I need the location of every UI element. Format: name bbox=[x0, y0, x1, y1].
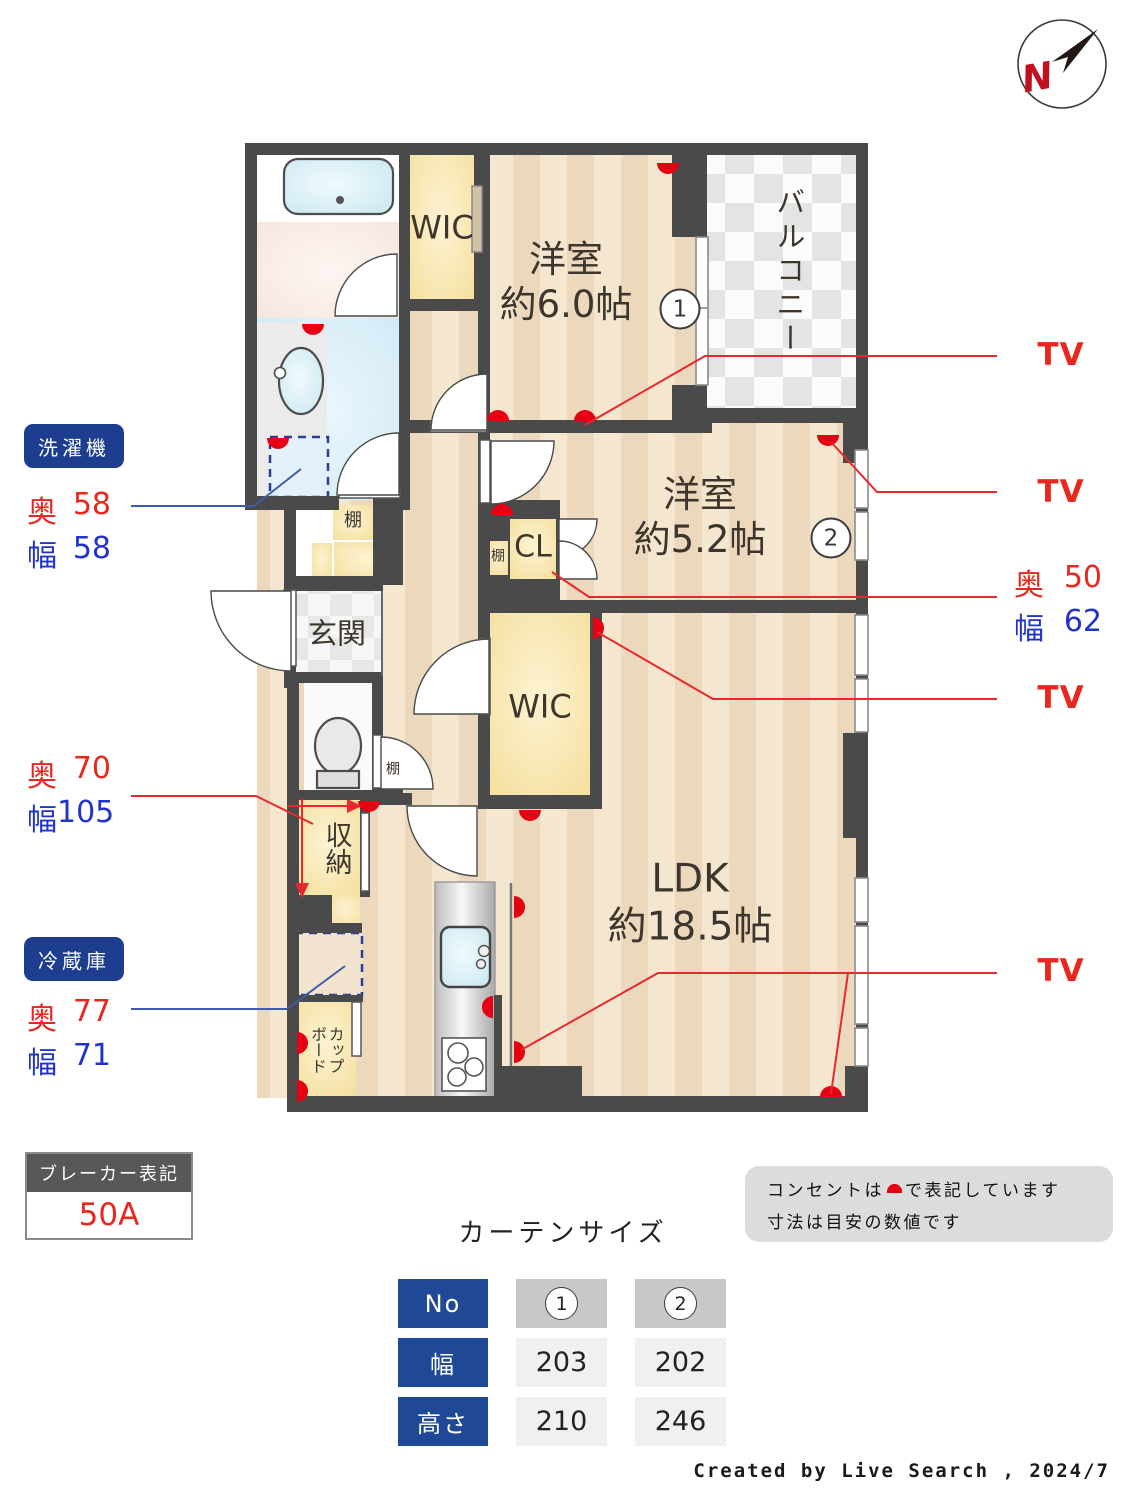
room-label-bedroom2: 洋室 約5.2帖 bbox=[634, 472, 767, 562]
floor-plan-drawing bbox=[0, 0, 1125, 1500]
curtain-width-2: 202 bbox=[635, 1338, 726, 1387]
curtain-marker-1: 1 bbox=[660, 289, 701, 330]
curtain-height-1: 210 bbox=[516, 1397, 607, 1446]
legend-note-box: コンセントは で表記しています 寸法は目安の数値です bbox=[745, 1166, 1113, 1242]
breaker-box: ブレーカー表記 50A bbox=[25, 1152, 193, 1240]
tv-annotation-2: TV bbox=[1037, 474, 1084, 510]
room-label-cupboard: カップ ボード bbox=[308, 1007, 343, 1093]
kitchen-faucet-icon bbox=[477, 960, 486, 969]
dim-label: 幅 bbox=[1014, 604, 1044, 648]
curtain-marker-2: 2 bbox=[811, 518, 852, 559]
dim-label: 奥 bbox=[27, 994, 57, 1038]
dim-label: 幅 bbox=[27, 795, 57, 839]
dim-label: 幅 bbox=[27, 531, 57, 575]
dim-label: 奥 bbox=[27, 751, 57, 795]
shoe-box-1 bbox=[312, 543, 332, 578]
washer-badge: 洗濯機 bbox=[24, 424, 124, 468]
room-label-bedroom1: 洋室 約6.0帖 bbox=[500, 237, 633, 327]
washer-depth-row: 奥 58 bbox=[27, 487, 111, 531]
curtain-table-title: カーテンサイズ bbox=[458, 1213, 667, 1250]
circled-2: 2 bbox=[664, 1287, 697, 1320]
room-label-wic-top: WIC bbox=[410, 208, 473, 247]
dim-value: 62 bbox=[1064, 604, 1102, 648]
cupboard-line2: ボード bbox=[308, 1026, 327, 1074]
room2-name: 洋室 bbox=[634, 472, 767, 517]
bath-drain-icon bbox=[336, 196, 344, 204]
curtain-width-1: 203 bbox=[516, 1338, 607, 1387]
breaker-value: 50A bbox=[27, 1192, 191, 1238]
fridge-badge: 冷蔵庫 bbox=[24, 937, 124, 981]
shuno-ext-fill bbox=[330, 895, 360, 927]
room1-name: 洋室 bbox=[500, 237, 633, 282]
tv-annotation-1: TV bbox=[1037, 337, 1084, 373]
bathtub-icon bbox=[284, 159, 393, 214]
breaker-title: ブレーカー表記 bbox=[27, 1154, 191, 1192]
outlet-legend-icon bbox=[887, 1184, 902, 1193]
toilet-tank-icon bbox=[317, 771, 359, 788]
room1-size: 約6.0帖 bbox=[500, 282, 633, 327]
curtain-row-width: 幅 203 202 bbox=[398, 1338, 726, 1387]
shelf-label-entry: 棚 bbox=[344, 510, 362, 532]
circled-1: 1 bbox=[545, 1287, 578, 1320]
cupboard-line1: カップ bbox=[326, 1026, 345, 1074]
dim-value: 70 bbox=[73, 751, 111, 795]
room-label-shuno: 収納 bbox=[319, 821, 352, 875]
floor-plan-page: N WIC 洋室 約6.0帖 バルコニー 洋室 約5.2帖 CL 棚 WIC 玄… bbox=[0, 0, 1125, 1500]
curtain-row-no: No 1 2 bbox=[398, 1279, 726, 1328]
curtain-header-height: 高さ bbox=[398, 1397, 488, 1446]
burner-icon bbox=[448, 1068, 466, 1086]
curtain-header-width: 幅 bbox=[398, 1338, 488, 1387]
credit-text: Created by Live Search , 2024/7 bbox=[560, 1460, 1110, 1482]
dim-value: 77 bbox=[73, 994, 111, 1038]
ldk-size: 約18.5帖 bbox=[608, 903, 773, 951]
dim-value: 58 bbox=[73, 531, 111, 575]
washer-width-row: 幅 58 bbox=[27, 531, 111, 575]
dim-value: 71 bbox=[73, 1038, 111, 1082]
dim-value: 50 bbox=[1064, 560, 1102, 604]
room-label-cl: CL bbox=[514, 530, 552, 567]
tv-annotation-4: TV bbox=[1037, 953, 1084, 989]
kitchen-faucet-icon bbox=[479, 946, 490, 957]
note-line-2: 寸法は目安の数値です bbox=[767, 1208, 1113, 1233]
front-door-swing bbox=[211, 591, 291, 671]
ldk-name: LDK bbox=[608, 855, 773, 903]
dim-label: 幅 bbox=[27, 1038, 57, 1082]
curtain-height-2: 246 bbox=[635, 1397, 726, 1446]
note-line1-prefix: コンセントは bbox=[767, 1176, 884, 1201]
burner-icon bbox=[448, 1043, 468, 1063]
note-line-1: コンセントは で表記しています bbox=[767, 1176, 1113, 1201]
dim-label: 奥 bbox=[27, 487, 57, 531]
curtain-header-no: No bbox=[398, 1279, 488, 1328]
room2-size: 約5.2帖 bbox=[634, 517, 767, 562]
dim-value: 105 bbox=[57, 795, 114, 839]
closet-depth-row: 奥 70 bbox=[27, 751, 111, 795]
closet-width-row: 幅 105 bbox=[27, 795, 111, 839]
curtain-row-height: 高さ 210 246 bbox=[398, 1397, 726, 1446]
burner-icon bbox=[465, 1058, 483, 1076]
curtain-col-1: 1 bbox=[516, 1279, 607, 1328]
toilet-bowl-icon bbox=[315, 718, 361, 774]
tv-annotation-3: TV bbox=[1037, 680, 1084, 716]
cl-width-row: 幅 62 bbox=[1014, 604, 1102, 648]
room-label-ldk: LDK 約18.5帖 bbox=[608, 855, 773, 950]
fridge-space bbox=[295, 933, 362, 995]
cl-depth-row: 奥 50 bbox=[1014, 560, 1102, 604]
curtain-col-2: 2 bbox=[635, 1279, 726, 1328]
note-line1-suffix: で表記しています bbox=[905, 1176, 1061, 1201]
room-label-wic-ldk: WIC bbox=[508, 687, 571, 726]
dim-value: 58 bbox=[73, 487, 111, 531]
room-label-balcony: バルコニー bbox=[770, 187, 805, 357]
shelf-label-hall: 棚 bbox=[386, 761, 400, 778]
room-label-genkan: 玄関 bbox=[308, 616, 366, 651]
washbasin-icon bbox=[279, 348, 323, 414]
shelf-label-cl: 棚 bbox=[491, 548, 505, 565]
fridge-width-row: 幅 71 bbox=[27, 1038, 111, 1082]
fridge-depth-row: 奥 77 bbox=[27, 994, 111, 1038]
dim-label: 奥 bbox=[1014, 560, 1044, 604]
faucet-icon bbox=[275, 368, 286, 379]
